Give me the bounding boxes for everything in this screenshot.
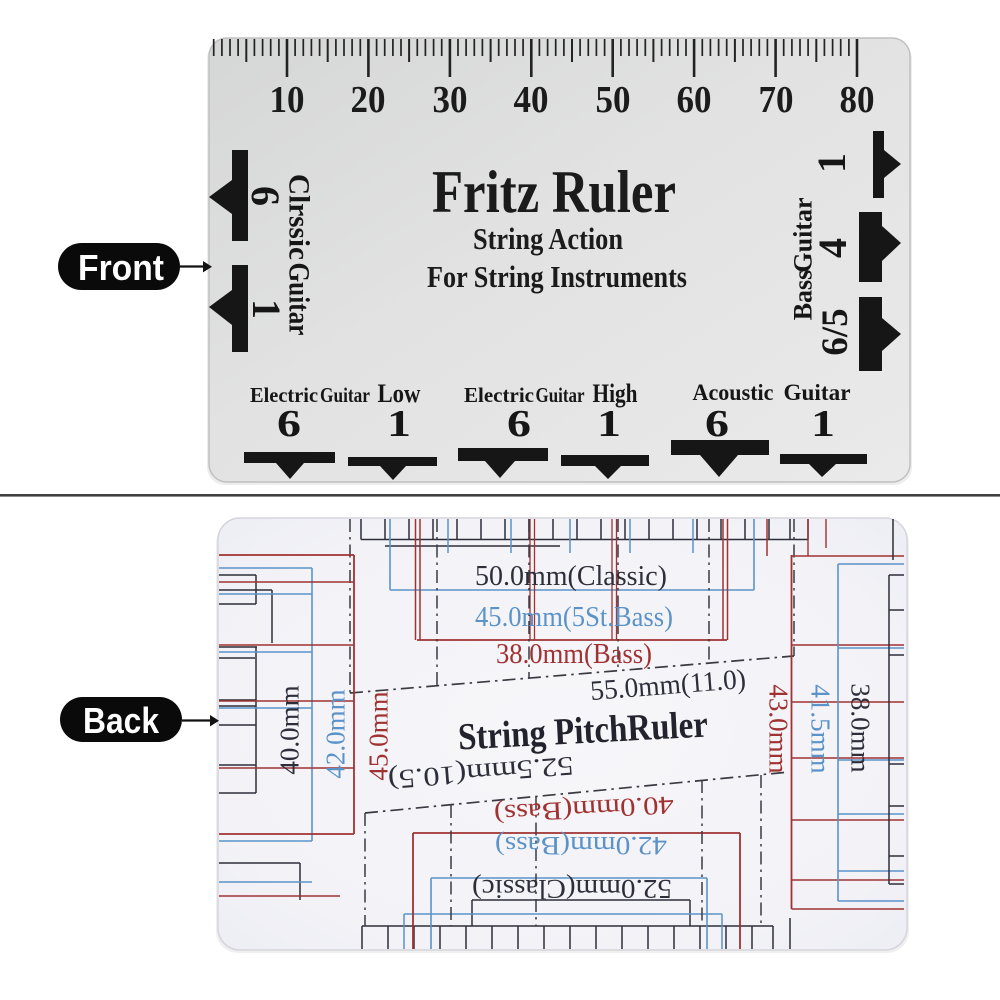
svg-text:80: 80	[840, 79, 875, 121]
svg-text:1: 1	[597, 403, 621, 445]
svg-text:1: 1	[244, 299, 289, 319]
svg-text:Bass: Bass	[788, 270, 817, 321]
svg-text:38.0mm(Bass): 38.0mm(Bass)	[496, 639, 652, 670]
svg-text:Front: Front	[78, 247, 164, 288]
svg-text:60: 60	[677, 79, 712, 121]
svg-text:45.0mm(5St.Bass): 45.0mm(5St.Bass)	[475, 602, 673, 633]
svg-text:Guitar: Guitar	[536, 383, 585, 407]
svg-text:1: 1	[387, 403, 411, 445]
svg-text:For String Instruments: For String Instruments	[427, 259, 687, 294]
svg-text:6: 6	[705, 403, 729, 445]
svg-text:String Action: String Action	[473, 221, 623, 256]
svg-text:1: 1	[809, 153, 854, 173]
svg-text:45.0mm: 45.0mm	[364, 691, 394, 780]
svg-text:6/5: 6/5	[815, 308, 856, 355]
svg-text:6: 6	[507, 403, 531, 445]
svg-text:Back: Back	[83, 700, 160, 741]
svg-text:Guitar: Guitar	[788, 197, 817, 272]
svg-text:Clrssic: Clrssic	[282, 174, 315, 260]
svg-text:Acoustic: Acoustic	[693, 380, 774, 405]
svg-text:4: 4	[810, 238, 855, 258]
svg-text:6: 6	[243, 186, 288, 206]
svg-text:42.0mm: 42.0mm	[321, 689, 351, 778]
svg-text:42.0mm(Bass): 42.0mm(Bass)	[495, 831, 667, 860]
svg-text:50: 50	[596, 79, 631, 121]
svg-text:40: 40	[514, 79, 549, 121]
svg-text:52.0mm(Classic): 52.0mm(Classic)	[472, 874, 672, 904]
svg-text:70: 70	[759, 79, 794, 121]
svg-text:Guitar: Guitar	[784, 380, 851, 405]
svg-text:41.5mm: 41.5mm	[805, 684, 835, 773]
svg-text:50.0mm(Classic): 50.0mm(Classic)	[475, 561, 667, 592]
svg-text:30: 30	[433, 79, 468, 121]
svg-text:38.0mm: 38.0mm	[845, 683, 875, 772]
svg-text:1: 1	[811, 403, 835, 445]
svg-text:Fritz Ruler: Fritz Ruler	[432, 159, 676, 225]
svg-text:43.0mm: 43.0mm	[763, 684, 793, 773]
svg-text:20: 20	[351, 79, 386, 121]
svg-text:6: 6	[277, 403, 301, 445]
svg-text:10: 10	[270, 79, 305, 121]
svg-text:Guitar: Guitar	[320, 383, 370, 407]
svg-text:40.0mm: 40.0mm	[275, 685, 305, 774]
